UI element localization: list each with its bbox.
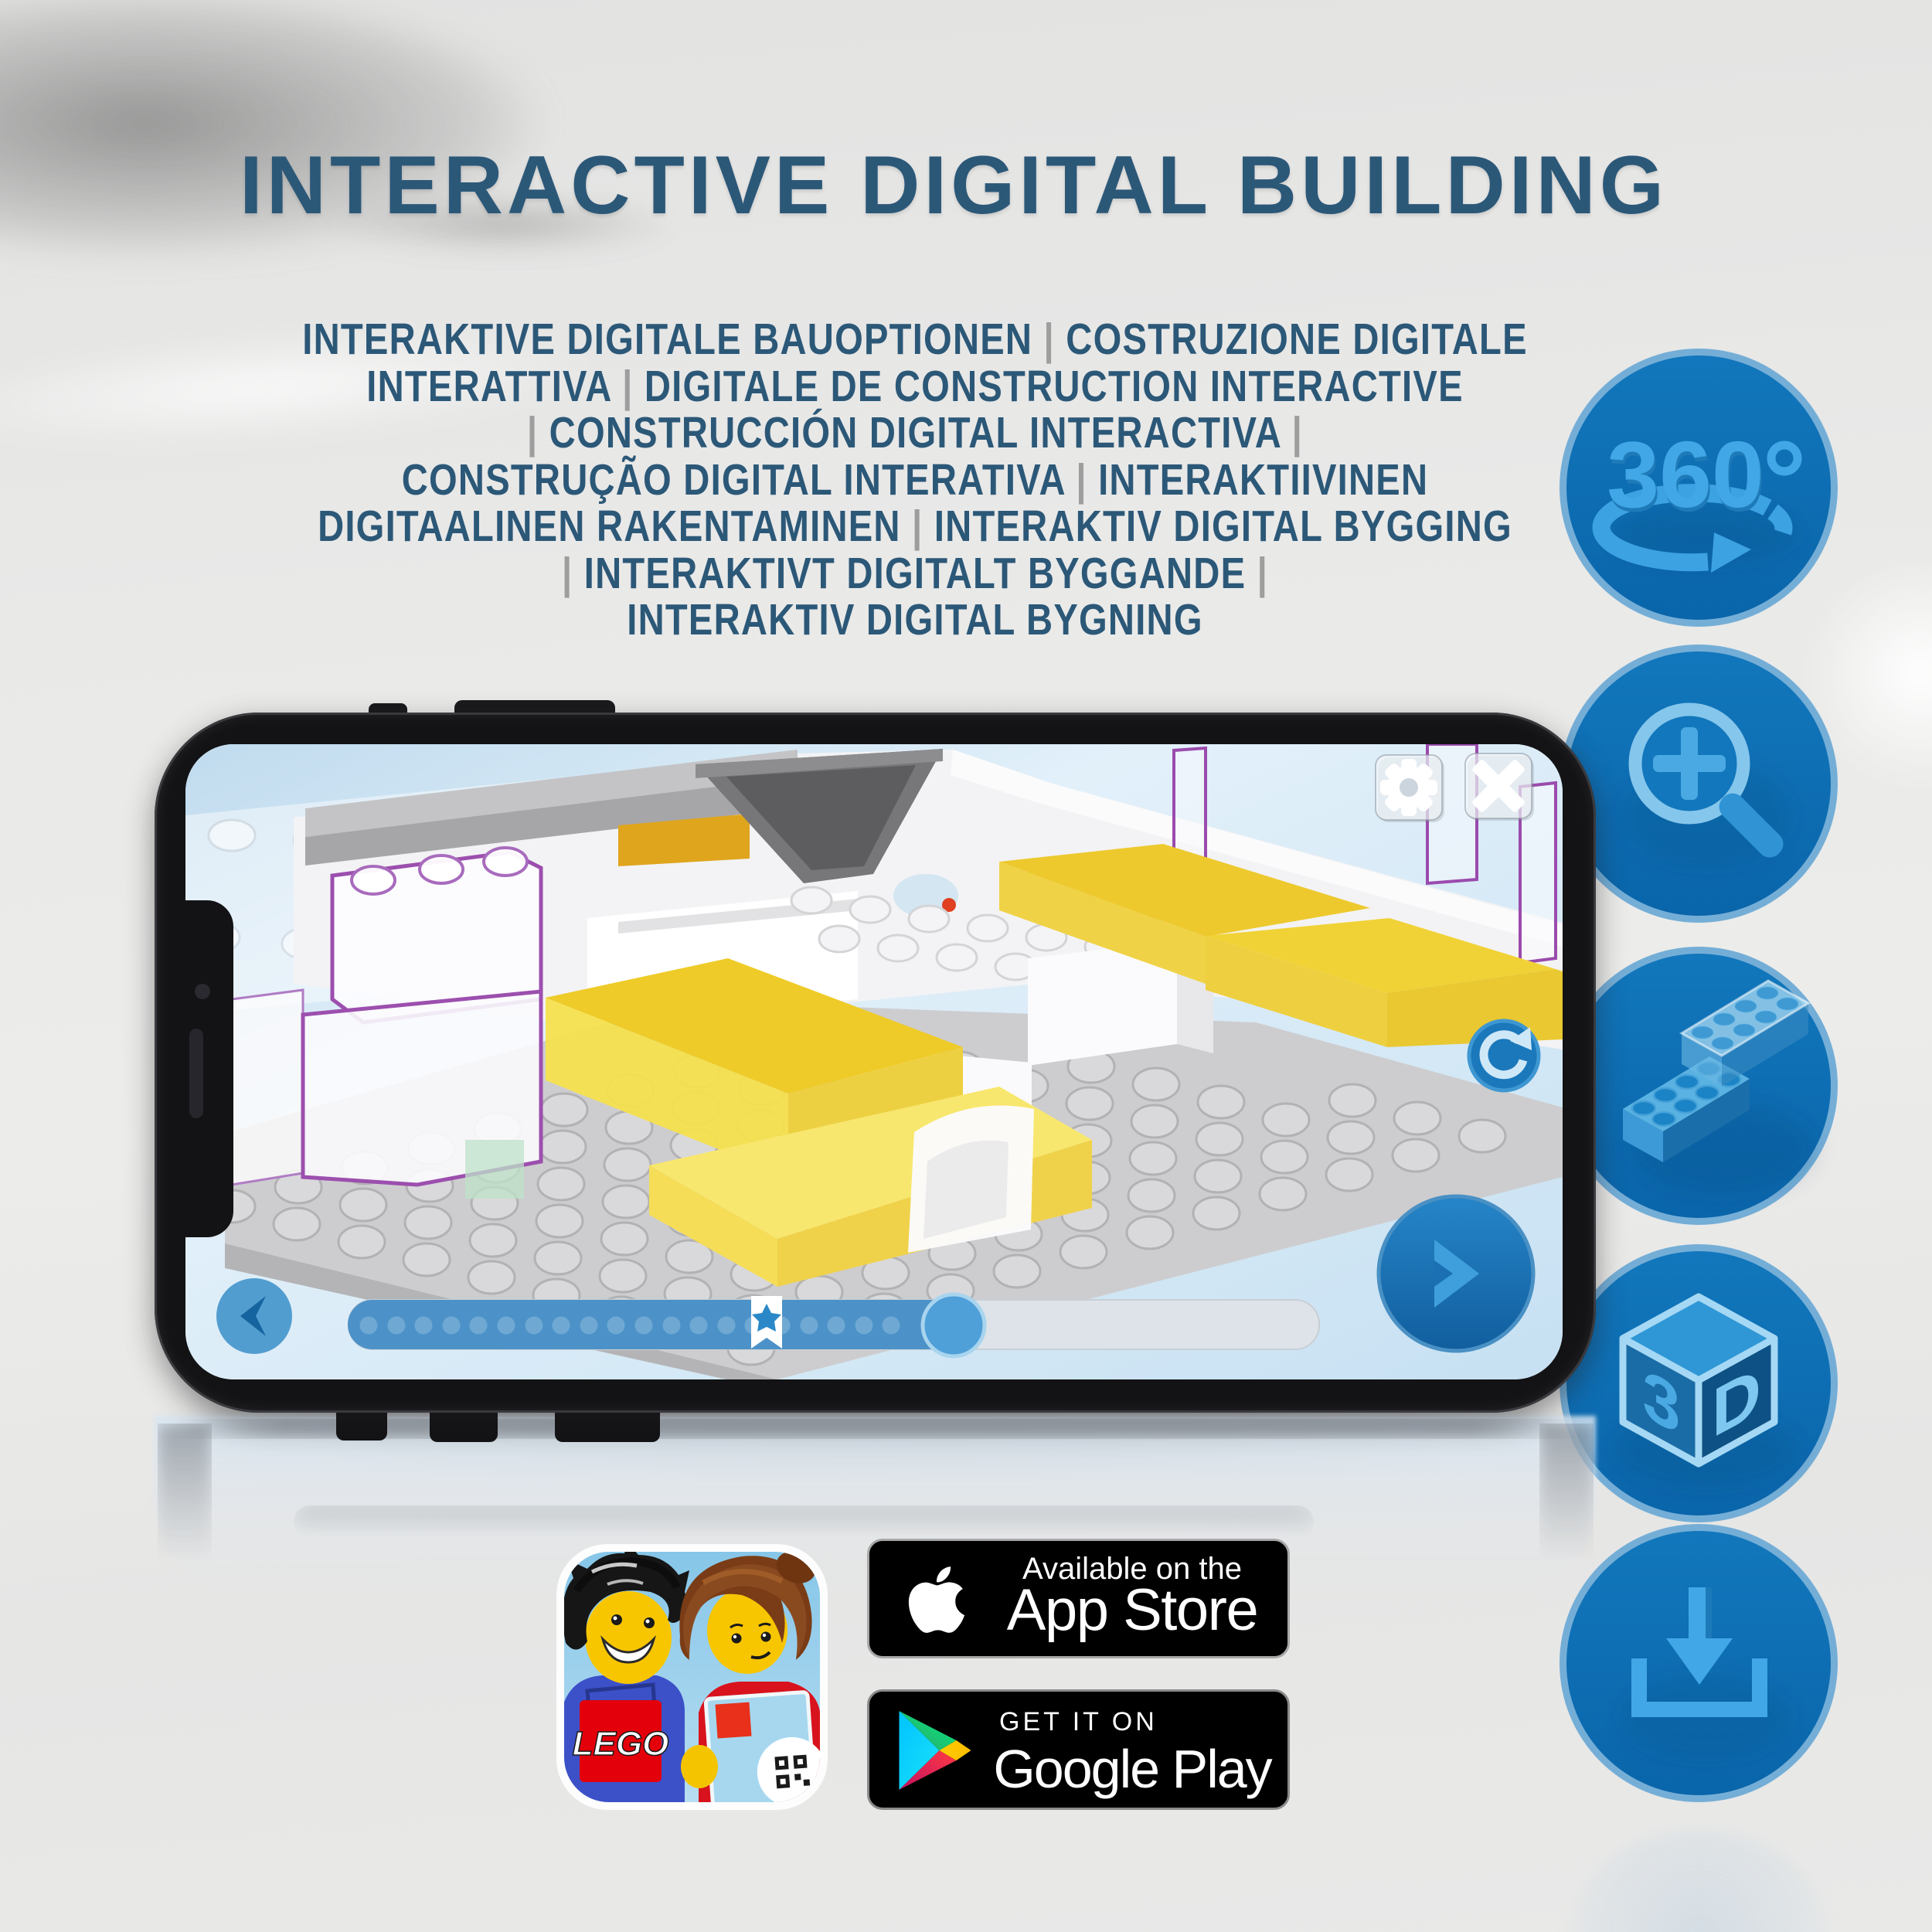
svg-text:LEGO: LEGO: [573, 1725, 669, 1763]
svg-text:360: 360: [1607, 422, 1764, 527]
